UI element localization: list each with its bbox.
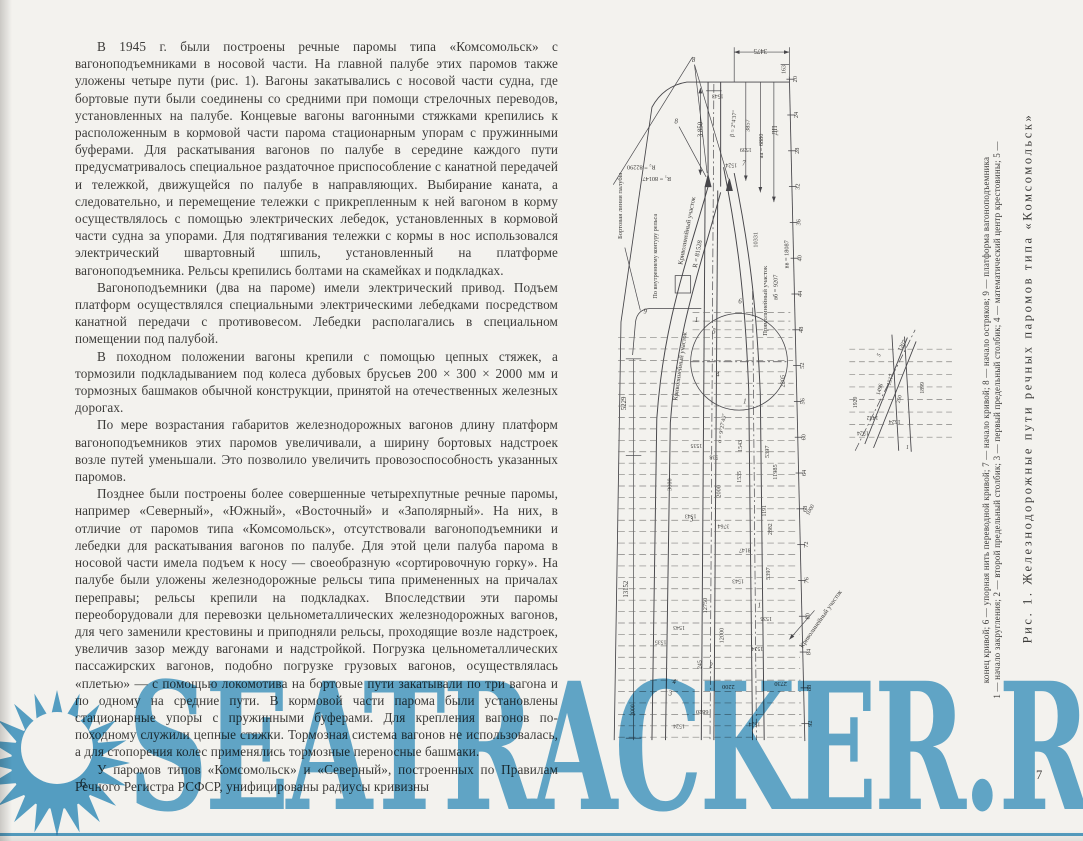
dim-label: 538 — [709, 454, 718, 460]
dim-label: α = 9°27′45″ — [716, 412, 728, 443]
dim-label: 1535 — [737, 471, 743, 483]
dim-label: 1543 — [712, 93, 724, 99]
dim-label: β = 2°4′37″ — [729, 109, 739, 137]
dim-label: 1524 — [857, 429, 869, 435]
callout-number: 1 — [906, 445, 909, 451]
frame-number: 64 — [801, 469, 808, 476]
callout-number: 7 — [742, 160, 746, 167]
dim-label: 1432 — [867, 414, 879, 420]
dim-label: R₂ = 82290 — [627, 163, 656, 170]
callout-number: 1 — [758, 603, 761, 610]
dim-label: 1543 — [732, 577, 744, 583]
dim-label: 1899 — [920, 382, 926, 394]
dim-label: 12000 — [719, 628, 726, 644]
dim-label: 10331 — [752, 232, 759, 248]
callout-number: 6 — [738, 299, 742, 306]
dim-label: 5229 — [621, 396, 628, 410]
crossing-detail-inset — [865, 335, 916, 452]
paragraph: В 1945 г. были построены речные паромы т… — [75, 38, 558, 279]
paragraph: По мере возрастания габаритов железнодор… — [75, 416, 558, 485]
dim-label: 3 850 — [697, 121, 704, 137]
dim-label: 163 — [781, 65, 787, 74]
dim-label: 1543 — [673, 624, 685, 630]
frame-number: 72 — [803, 541, 810, 547]
dim-label: Криволинейный участок — [672, 331, 689, 401]
figure-caption-legend-line2: конец кривой; 6 — упорная нить переводно… — [981, 157, 991, 684]
dim-label: 1207 — [897, 339, 908, 352]
frame-number: 36 — [795, 219, 802, 225]
dim-label: Прямолинейный участок — [762, 265, 769, 336]
callout-number: 1 — [743, 398, 746, 405]
dim-label: 5397 — [764, 445, 771, 458]
frame-number: 56 — [800, 398, 807, 404]
book-spread: В 1945 г. были построены речные паромы т… — [0, 0, 1083, 841]
callout-number: 8 — [674, 119, 678, 126]
frame-number: 40 — [796, 255, 803, 261]
dim-label: 1920 — [853, 396, 859, 408]
callout-number: 4 — [716, 371, 720, 378]
callout-number: 8 — [692, 57, 696, 64]
sunburst-icon — [0, 690, 146, 841]
dim-label: 3857 — [745, 119, 752, 132]
dim-label: 2000 — [716, 485, 723, 498]
dim-label: 1524 — [889, 418, 901, 424]
dim-label: 1517 — [887, 373, 896, 386]
dim-label: 1000 — [805, 504, 816, 517]
dim-label: 1543 — [738, 440, 744, 452]
dimension-lines — [613, 47, 814, 740]
figure-caption-legend-line1: 1 — начало закругления; 2 — второй преде… — [992, 141, 1002, 698]
dim-label: 3000 — [666, 478, 673, 491]
dim-label: 3475 — [753, 47, 767, 54]
dim-label: 1496 — [876, 383, 885, 396]
frame-number: 52 — [799, 362, 806, 368]
dim-label: 1191 — [762, 505, 768, 516]
callout-number: 5 — [876, 353, 883, 359]
dim-label: аа = 6880 — [758, 134, 765, 159]
dim-label: 2205 — [780, 375, 787, 388]
dim-label: 1524 — [725, 161, 737, 167]
callout-number: 3 — [689, 516, 694, 523]
dim-label: 12750 — [702, 598, 709, 614]
dim-label: 250 — [896, 394, 904, 404]
dim-label: 3764 — [718, 522, 730, 528]
frame-number: 20 — [792, 76, 799, 82]
frame-number: 48 — [798, 327, 805, 333]
dim-label: 1539 — [740, 146, 752, 152]
frame-number: 24 — [793, 111, 800, 118]
dim-label: По внутреннему контуру рельса — [652, 214, 659, 299]
dim-label: вв = 18087 — [783, 240, 790, 268]
frame-number: 76 — [804, 577, 811, 583]
dim-label: 1535 — [760, 615, 772, 621]
sun-highlight — [21, 712, 93, 784]
dim-label: вб = 9207 — [773, 275, 780, 300]
callout-number: 1 — [695, 317, 698, 324]
dim-label: ДП — [772, 126, 779, 136]
dim-label: R₁ = 80147 — [642, 175, 671, 182]
frame-number: 60 — [800, 434, 807, 440]
dim-label: 5397 — [765, 567, 772, 580]
watermark-text: SEATRACKER.RU — [128, 660, 1083, 836]
frame-number: 44 — [797, 290, 804, 297]
dim-label: 11985 — [772, 464, 779, 479]
paragraph: В походном положении вагоны крепили с по… — [75, 348, 558, 417]
frame-number: 32 — [795, 183, 802, 189]
dim-label: 13152 — [623, 580, 630, 598]
dim-label: Бортовая линия палубы — [617, 172, 624, 239]
figure-caption-title: Рис. 1. Железнодорожные пути речных паро… — [1021, 113, 1036, 644]
frame-number: 28 — [794, 148, 801, 154]
dimension-labels: 347516315433 850β = 2°4′37″385715391524а… — [617, 47, 926, 728]
watermark-underline — [0, 833, 1083, 836]
callout-number: 9 — [643, 308, 647, 315]
dim-label: 8147 — [739, 547, 751, 553]
dim-label: 2882 — [768, 523, 774, 535]
dim-label: 1535 — [691, 442, 703, 448]
frame-number: 80 — [805, 613, 812, 619]
paragraph: Вагоноподъемники (два на пароме) имели э… — [75, 279, 558, 348]
callout-number: 5 — [712, 329, 716, 336]
dim-label: R = 81528 — [692, 239, 704, 268]
